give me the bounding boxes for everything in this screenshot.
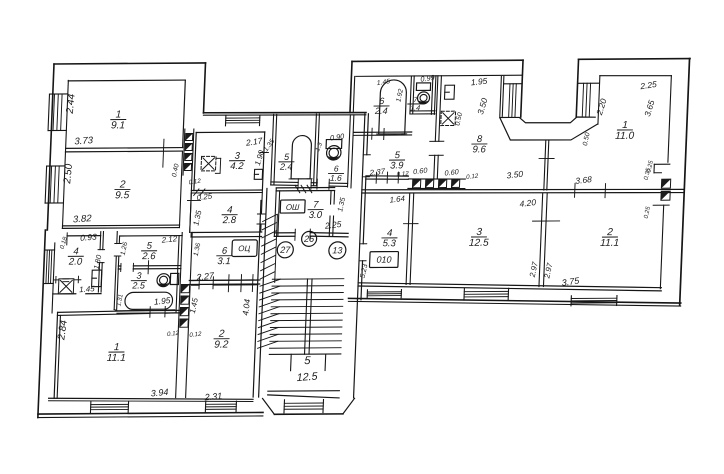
svg-text:2.4: 2.4 [374, 106, 388, 116]
svg-text:9.2: 9.2 [214, 340, 229, 351]
svg-text:9.5: 9.5 [115, 190, 130, 201]
svg-text:0.25: 0.25 [196, 192, 213, 203]
svg-text:3.0: 3.0 [308, 210, 322, 221]
svg-text:010: 010 [376, 255, 391, 265]
svg-text:1.95: 1.95 [471, 76, 488, 88]
svg-text:2.8: 2.8 [221, 215, 236, 226]
svg-text:12.5: 12.5 [296, 371, 317, 385]
svg-text:2.6: 2.6 [141, 251, 156, 262]
svg-text:5.3: 5.3 [382, 238, 396, 249]
svg-text:3.50: 3.50 [506, 169, 523, 181]
svg-text:0.12: 0.12 [396, 170, 409, 178]
svg-text:9.6: 9.6 [472, 144, 486, 155]
svg-text:27: 27 [279, 245, 291, 255]
svg-text:1.6: 1.6 [330, 173, 342, 183]
svg-text:26: 26 [303, 234, 315, 244]
svg-text:3.94: 3.94 [151, 387, 169, 399]
svg-text:0.60: 0.60 [444, 167, 460, 178]
svg-text:4.20: 4.20 [519, 197, 536, 209]
svg-text:2.25: 2.25 [324, 219, 342, 231]
svg-text:3.73: 3.73 [74, 135, 94, 147]
svg-text:2.44: 2.44 [65, 93, 78, 115]
svg-text:1.95: 1.95 [154, 295, 171, 307]
svg-text:11.1: 11.1 [600, 238, 619, 249]
svg-text:0.60: 0.60 [413, 166, 429, 177]
svg-text:5: 5 [304, 355, 311, 367]
svg-text:2.37: 2.37 [368, 167, 386, 178]
svg-text:3.82: 3.82 [73, 213, 93, 225]
svg-text:2.12: 2.12 [160, 234, 178, 245]
svg-text:2.50: 2.50 [62, 163, 75, 185]
svg-text:3: 3 [476, 227, 482, 238]
svg-text:2.4: 2.4 [279, 162, 293, 172]
svg-text:9.1: 9.1 [111, 120, 126, 131]
svg-text:13: 13 [332, 245, 342, 255]
svg-text:12.5: 12.5 [469, 238, 490, 249]
svg-text:2.0: 2.0 [68, 257, 83, 268]
svg-text:3.9: 3.9 [390, 160, 404, 171]
svg-text:1: 1 [115, 110, 121, 121]
svg-text:3.68: 3.68 [575, 174, 592, 186]
svg-text:1.64: 1.64 [389, 194, 406, 205]
svg-text:3.1: 3.1 [217, 256, 231, 267]
svg-text:2.5: 2.5 [131, 280, 146, 290]
svg-text:0.12: 0.12 [189, 331, 202, 339]
svg-text:2.31: 2.31 [203, 391, 222, 403]
svg-text:1.4: 1.4 [410, 103, 421, 112]
svg-text:11.0: 11.0 [615, 131, 635, 142]
svg-text:2: 2 [218, 329, 225, 340]
svg-text:0.12: 0.12 [167, 330, 180, 338]
svg-text:4.04: 4.04 [240, 298, 252, 316]
svg-text:1.45: 1.45 [79, 284, 95, 294]
svg-text:4.2: 4.2 [230, 161, 244, 172]
svg-text:2: 2 [119, 179, 126, 190]
svg-text:1: 1 [622, 120, 628, 131]
svg-text:0.93: 0.93 [80, 232, 97, 243]
svg-text:1: 1 [114, 342, 120, 353]
svg-text:ОШ: ОШ [286, 203, 301, 212]
svg-text:ОЦ: ОЦ [238, 244, 251, 253]
svg-text:2: 2 [606, 227, 613, 238]
svg-text:3: 3 [136, 271, 141, 281]
svg-text:11.1: 11.1 [106, 353, 125, 364]
svg-text:0.12: 0.12 [466, 173, 479, 181]
